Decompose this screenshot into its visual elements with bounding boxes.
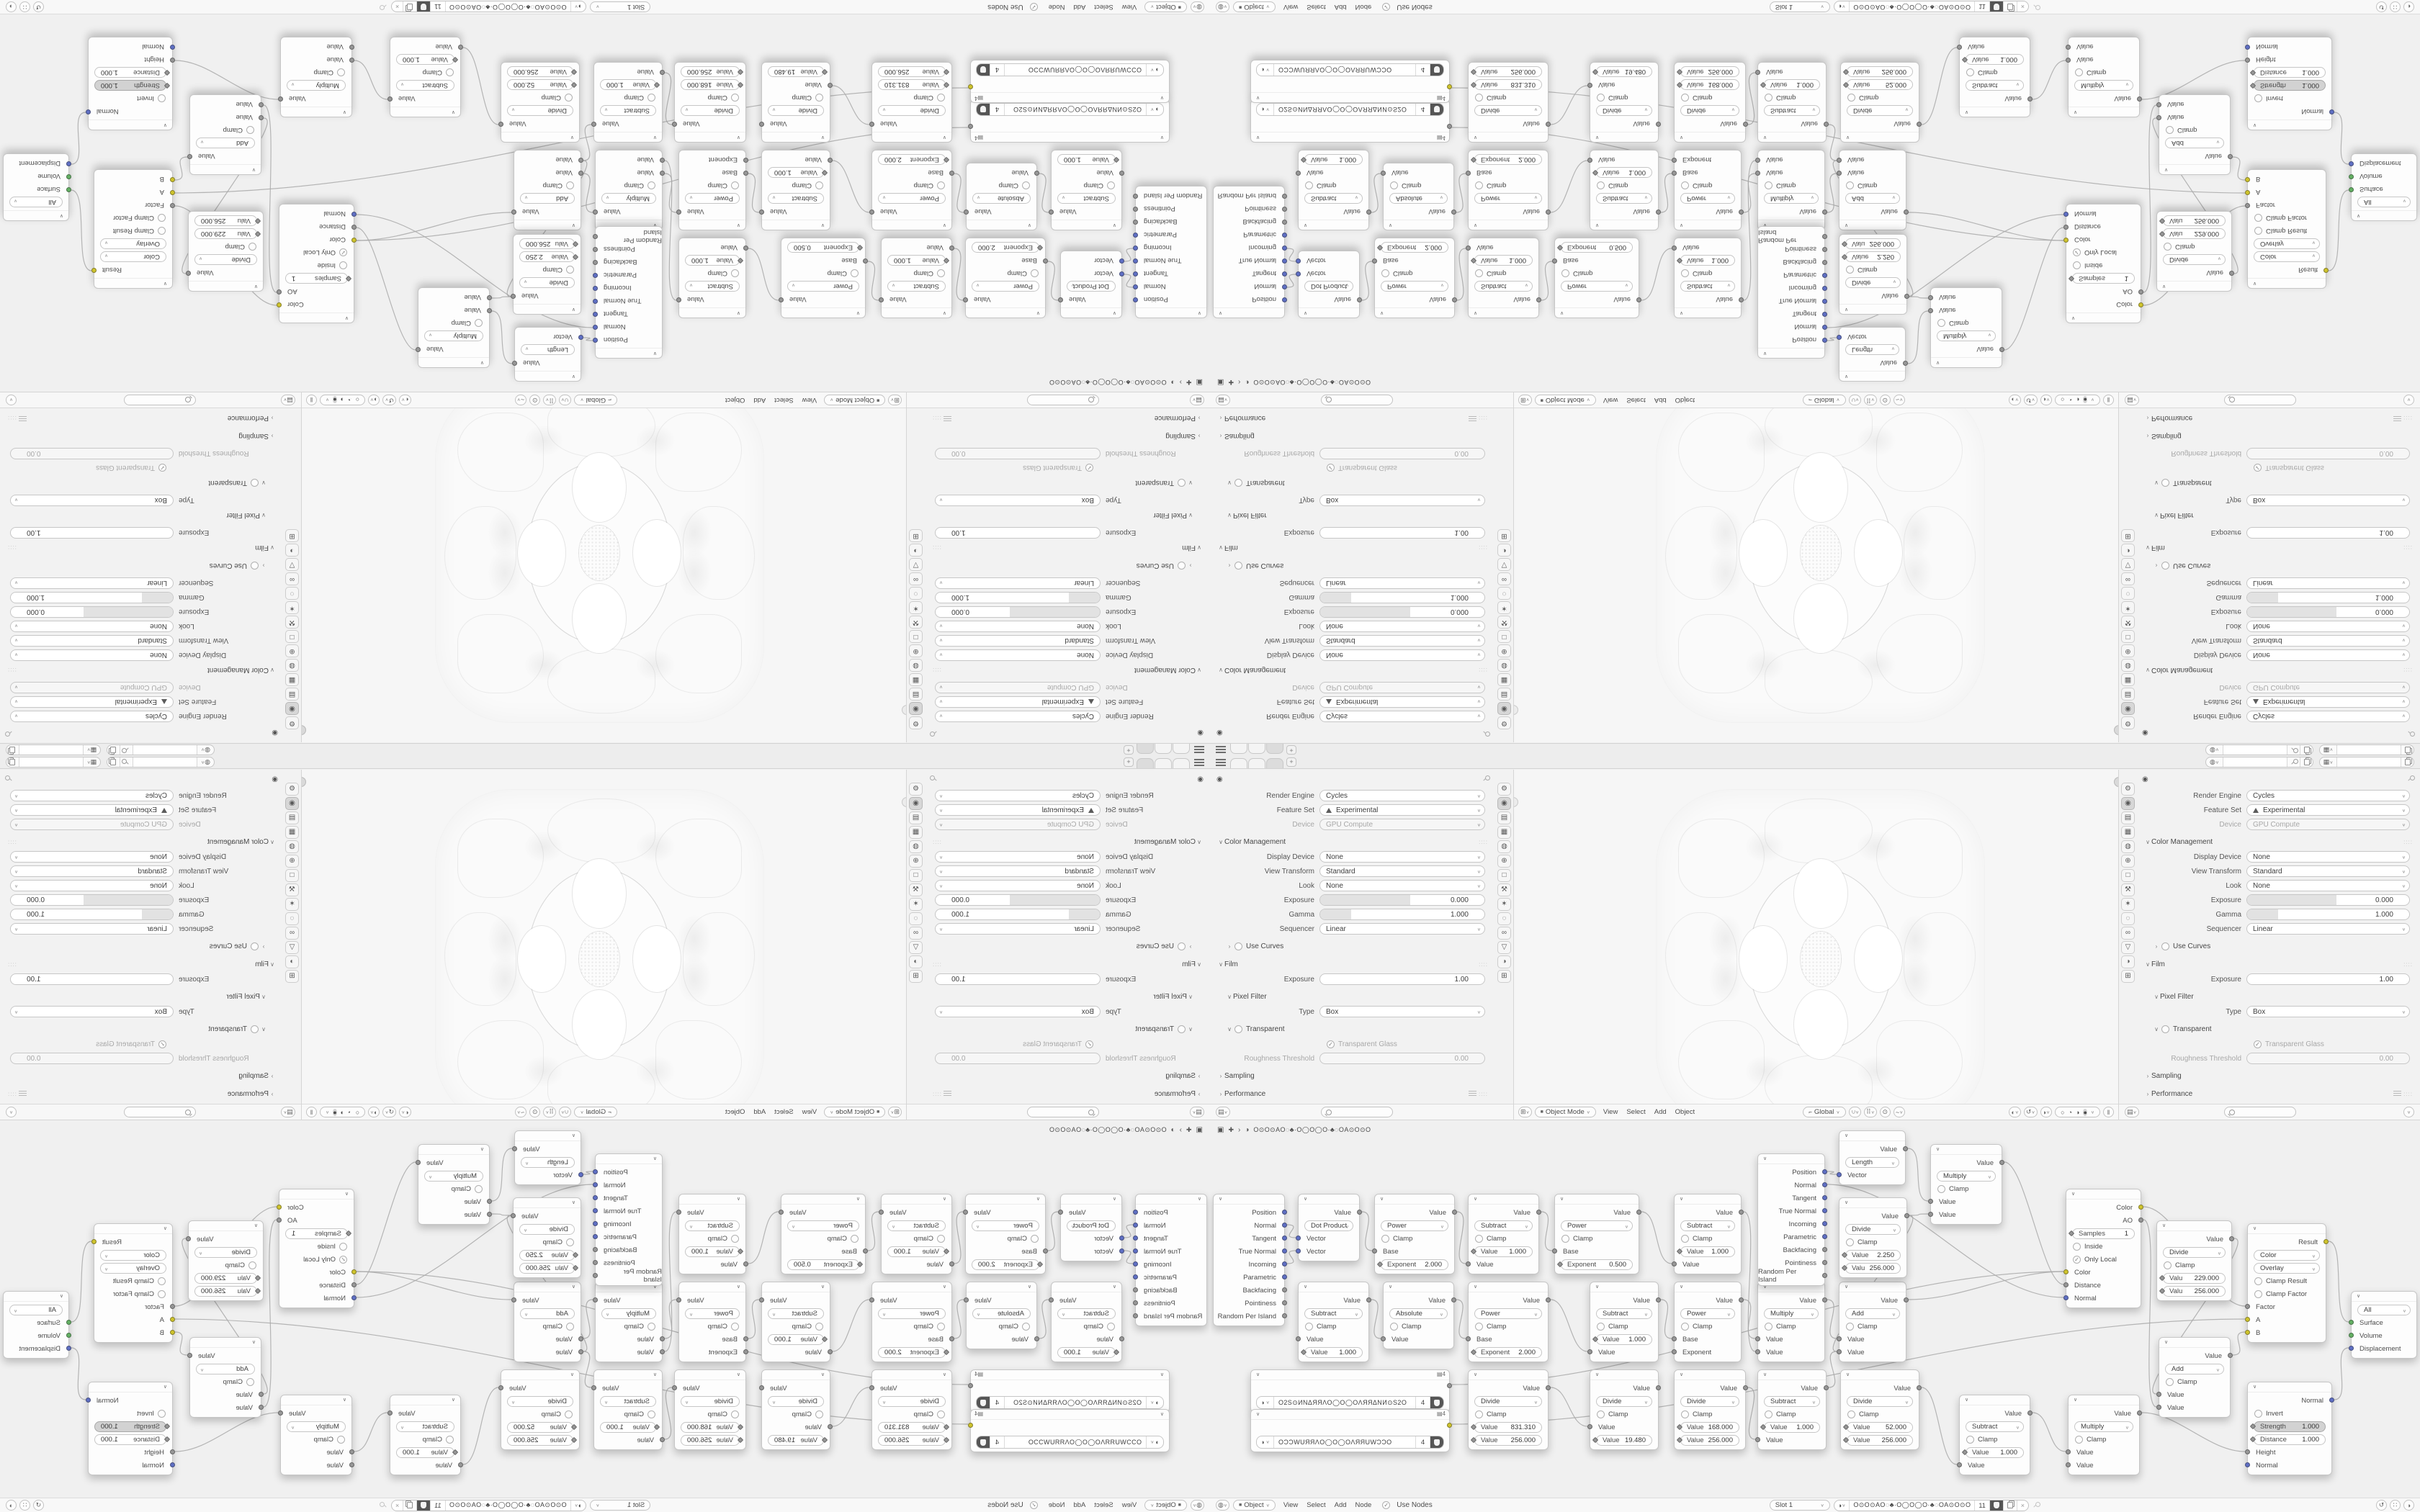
properties-tab-view-layer[interactable]: ▦: [2121, 673, 2135, 686]
output-socket-value[interactable]: [1917, 122, 1922, 127]
properties-pin-icon[interactable]: [931, 775, 938, 782]
output-socket-value[interactable]: [1739, 1297, 1744, 1302]
properties-tab-tool[interactable]: ⚙: [909, 783, 923, 796]
input-socket-vector[interactable]: [1119, 1236, 1124, 1241]
input-socket-value[interactable]: [487, 308, 492, 313]
value-field[interactable]: Value19.480: [768, 1435, 824, 1446]
image-datablock-node[interactable]: ∨▤4◑∨O2S⊙ИΝΔЯЯΛO◯O◯OΛЯЯΔΝИ⊙S2O4: [1250, 99, 1450, 143]
checkbox-icon[interactable]: [339, 262, 347, 270]
checkbox-icon[interactable]: [1475, 270, 1483, 278]
output-socket-value[interactable]: [759, 1385, 764, 1390]
output-socket-value[interactable]: [511, 210, 516, 215]
output-socket-value[interactable]: [1546, 1385, 1551, 1390]
collapse-caret-icon[interactable]: ∨: [1474, 222, 1477, 228]
collapse-button[interactable]: ∨: [2403, 1107, 2414, 1117]
scene-pin-icon[interactable]: [120, 745, 133, 755]
section-performance[interactable]: ›Performance::::: [2137, 1086, 2420, 1102]
prop-dropdown-render-engine[interactable]: Cycles∨: [2246, 711, 2410, 722]
prop-dropdown-view-transform[interactable]: Standard∨: [2246, 865, 2410, 877]
users-count[interactable]: 4: [1415, 64, 1430, 76]
input-socket-value[interactable]: [1837, 171, 1842, 176]
math-node[interactable]: ∨ValueSubtract∨ClampValue1.000Value: [1674, 238, 1742, 318]
output-socket-value[interactable]: [964, 210, 969, 215]
math-node[interactable]: ∨ValueSubtract∨ClampValue1.000Value: [1959, 1395, 2030, 1475]
view-layer-copy-icon[interactable]: [2401, 757, 2414, 767]
math-node[interactable]: ∨ValueMultiply∨ClampValueValue: [2068, 1395, 2140, 1475]
view-layer-copy-icon[interactable]: [6, 757, 19, 767]
output-socket-value[interactable]: [672, 122, 677, 127]
input-socket-base[interactable]: [1043, 258, 1048, 264]
node-header[interactable]: ∨▤4: [1251, 92, 1449, 102]
viewport-menu-add[interactable]: Add: [753, 396, 766, 404]
prop-dropdown-view-transform[interactable]: Standard∨: [2246, 635, 2410, 647]
operation-dropdown[interactable]: Subtract∨: [1057, 1308, 1116, 1319]
overlay-dots-toggle[interactable]: ∷: [19, 1, 30, 12]
image-datablock-node[interactable]: ∨▤4◑∨OƆƆWUЯЯΛO◯O◯OΛЯЯUWƆƆO4: [1250, 1409, 1450, 1452]
collapse-caret-icon[interactable]: ∨: [254, 1223, 258, 1228]
output-socket-incoming[interactable]: [593, 1221, 598, 1226]
overlays-toggle[interactable]: ◐∨: [2009, 395, 2021, 405]
node-header[interactable]: ∨: [679, 1282, 745, 1292]
operation-dropdown[interactable]: Divide∨: [507, 1396, 573, 1407]
properties-tab-output[interactable]: ▤: [2121, 811, 2135, 824]
fake-user-shield-icon[interactable]: [1990, 1500, 2004, 1511]
checkbox-icon[interactable]: [1107, 182, 1115, 190]
properties-tab-world[interactable]: ⊕: [909, 855, 923, 868]
properties-search-input[interactable]: [2224, 395, 2296, 405]
checkbox-icon[interactable]: [1681, 94, 1689, 102]
shading-mode-1[interactable]: ◔: [2069, 1109, 2072, 1116]
collapse-caret-icon[interactable]: ∨: [1595, 222, 1599, 228]
properties-tab-object[interactable]: □: [1497, 630, 1511, 643]
output-socket-value[interactable]: [1058, 297, 1063, 302]
value-field[interactable]: Value1.000: [1680, 256, 1735, 266]
section-checkbox[interactable]: [251, 480, 259, 487]
input-socket-b[interactable]: [2245, 177, 2250, 182]
node-menu-view[interactable]: View: [1122, 1501, 1137, 1509]
collapse-caret-icon[interactable]: ∨: [1595, 1372, 1599, 1377]
node-header[interactable]: ∨: [675, 1370, 745, 1380]
operation-dropdown[interactable]: Divide∨: [2163, 255, 2226, 266]
node-header[interactable]: ∨▤4: [971, 92, 1169, 102]
checkbox-icon[interactable]: [1681, 270, 1689, 278]
operation-dropdown[interactable]: Divide∨: [519, 278, 575, 289]
operation-dropdown[interactable]: Power∨: [878, 194, 946, 204]
collapse-caret-icon[interactable]: ∨: [480, 360, 484, 366]
node-header[interactable]: ∨▤4: [971, 1370, 1169, 1380]
fake-user-shield-icon[interactable]: [1430, 104, 1443, 115]
properties-tab-world[interactable]: ⊕: [2121, 855, 2135, 868]
operation-dropdown[interactable]: Add∨: [2165, 138, 2224, 149]
material-name-field[interactable]: O⊙O⊙AO◌♣·O◯O◯O·♣◌OA⊙O⊙O: [1850, 1500, 1975, 1511]
node-header[interactable]: ∨: [2248, 1382, 2331, 1392]
prop-field-exposure[interactable]: 1.00: [10, 973, 174, 985]
prop-check-transparent-glass[interactable]: ✓Transparent Glass: [1210, 461, 1495, 475]
output-socket-normal[interactable]: [1822, 1182, 1827, 1187]
operation-dropdown[interactable]: Divide∨: [1474, 1396, 1542, 1407]
input-socket-normal[interactable]: [2063, 1295, 2069, 1300]
collapse-caret-icon[interactable]: ∨: [1380, 310, 1384, 316]
operation-dropdown[interactable]: Power∨: [972, 1220, 1039, 1231]
shading-mode-0[interactable]: ○: [2061, 1109, 2064, 1116]
viewport-menu-object[interactable]: Object: [1675, 396, 1695, 404]
section-checkbox[interactable]: [1178, 1025, 1186, 1033]
node-header[interactable]: ∨: [515, 371, 581, 381]
prop-field-roughness-threshold[interactable]: 0.00: [10, 448, 174, 459]
properties-tab-tool[interactable]: ⚙: [285, 783, 299, 796]
scene-selector[interactable]: ◍∨: [107, 744, 215, 755]
fake-user-shield-icon[interactable]: [416, 2, 430, 12]
section-checkbox[interactable]: [2161, 1025, 2169, 1033]
properties-tab-tool[interactable]: ⚙: [285, 716, 299, 729]
properties-tab-scene[interactable]: ◍: [1497, 659, 1511, 672]
math-node[interactable]: ∨ValuePower∨ClampBaseExponent2.000: [871, 1282, 952, 1362]
operation-dropdown[interactable]: Subtract∨: [768, 1308, 824, 1319]
section-sampling[interactable]: ›Sampling: [925, 428, 1210, 444]
input-socket-value[interactable]: [660, 1349, 665, 1354]
scene-pin-icon[interactable]: [2287, 745, 2300, 755]
scene-name-field[interactable]: [133, 745, 197, 755]
collapse-caret-icon[interactable]: ∨: [163, 281, 167, 287]
collapse-caret-icon[interactable]: ∨: [2071, 315, 2075, 321]
section-color-management[interactable]: ∨Color Management::::: [0, 834, 283, 850]
section-film[interactable]: ∨Film::::: [0, 540, 283, 556]
collapse-caret-icon[interactable]: ∨: [1474, 1196, 1477, 1202]
properties-tab-object-data[interactable]: ▽: [285, 941, 299, 954]
properties-tab-constraints[interactable]: ∞: [285, 927, 299, 940]
prop-dropdown-view-transform[interactable]: Standard∨: [1319, 635, 1485, 647]
viewport-menu-object[interactable]: Object: [725, 396, 745, 404]
output-socket-result[interactable]: [91, 268, 97, 273]
value-field[interactable]: Value1.000: [600, 80, 656, 91]
checkbox-icon[interactable]: [815, 94, 823, 102]
viewport-3d[interactable]: ⊞∨ ■Object Mode∨ ViewSelectAddObject ⌐Gl…: [1514, 770, 2118, 1120]
input-socket-value[interactable]: [1119, 171, 1124, 176]
properties-tab-object-data[interactable]: ▽: [2121, 941, 2135, 954]
output-socket-random-per-island[interactable]: [1282, 1313, 1287, 1318]
value-field[interactable]: Strength1.000: [94, 81, 166, 91]
collapse-caret-icon[interactable]: ∨: [60, 1293, 63, 1299]
prop-slider-exposure[interactable]: 0.000: [10, 606, 174, 618]
math-node[interactable]: ∨ValueSubtract∨ClampValue1.000Value: [881, 238, 952, 318]
math-node[interactable]: ∨ValueDivide∨ClampValue52.000Value256.00…: [1840, 1369, 1919, 1450]
input-socket-vector[interactable]: [1837, 1172, 1842, 1177]
output-socket-position[interactable]: [1822, 338, 1827, 343]
section-checkbox[interactable]: [1234, 1025, 1242, 1033]
material-name-field[interactable]: O⊙O⊙AO◌♣·O◯O◯O·♣◌OA⊙O⊙O: [445, 2, 570, 12]
collapse-caret-icon[interactable]: ∨: [1680, 310, 1683, 316]
add-workspace-button[interactable]: +: [1286, 745, 1296, 755]
operation-dropdown[interactable]: Overlay∨: [2254, 1263, 2320, 1274]
properties-search-input[interactable]: [124, 1107, 196, 1117]
output-socket-position[interactable]: [593, 338, 598, 343]
node-header[interactable]: ∨: [1675, 1194, 1741, 1205]
scene-selector[interactable]: ◍∨: [2205, 744, 2313, 755]
output-socket-incoming[interactable]: [1822, 286, 1827, 291]
operation-dropdown[interactable]: Multiply∨: [2074, 1421, 2133, 1432]
prop-check-transparent-glass[interactable]: ✓Transparent Glass: [925, 1037, 1210, 1051]
geometry-node[interactable]: ∨PositionNormalTangentTrue NormalIncomin…: [1213, 1194, 1285, 1326]
properties-tab-particles[interactable]: ✶: [1497, 898, 1511, 911]
operation-dropdown[interactable]: Subtract∨: [1596, 1308, 1652, 1319]
checkbox-icon[interactable]: [2254, 1290, 2262, 1298]
node-header[interactable]: ∨: [2159, 164, 2230, 174]
collapse-caret-icon[interactable]: ∨: [1160, 95, 1164, 101]
prop-field-roughness-threshold[interactable]: 0.00: [2246, 448, 2410, 459]
output-socket-value[interactable]: [1536, 297, 1541, 302]
math-node[interactable]: ∨ValueSubtract∨ClampValue1.000Value: [1590, 1282, 1659, 1362]
math-node[interactable]: ∨ValueDivide∨ClampValue52.000Value256.00…: [1840, 62, 1919, 143]
output-socket-value[interactable]: [879, 1210, 884, 1215]
prop-slider-gamma[interactable]: 1.000: [935, 592, 1101, 603]
properties-tab-particles[interactable]: ✶: [909, 601, 923, 614]
checkbox-icon[interactable]: [158, 1290, 166, 1298]
input-socket-exponent[interactable]: [1672, 1349, 1677, 1354]
node-header[interactable]: ∨: [89, 1382, 172, 1392]
scene-name-field[interactable]: [2223, 757, 2287, 767]
section-checkbox[interactable]: [1234, 942, 1242, 950]
shading-mode-0[interactable]: ○: [355, 1109, 359, 1116]
output-socket-pointiness[interactable]: [1133, 207, 1138, 212]
properties-tab-modifiers[interactable]: ⚒: [285, 883, 299, 896]
collapse-caret-icon[interactable]: ∨: [343, 1397, 346, 1403]
math-node[interactable]: ∨ValueAdd∨ClampValueValue: [1839, 1282, 1906, 1362]
output-socket-tangent[interactable]: [1822, 1195, 1827, 1200]
section-pixel-filter[interactable]: ∨Pixel Filter: [0, 989, 283, 1004]
properties-tab-output[interactable]: ▤: [1497, 688, 1511, 701]
prop-field-exposure[interactable]: 1.00: [1319, 527, 1485, 539]
output-socket-value[interactable]: [593, 210, 598, 215]
input-socket-b[interactable]: [170, 1330, 175, 1335]
output-socket-random-per-island[interactable]: [1282, 194, 1287, 199]
node-header[interactable]: ∨: [189, 1221, 263, 1231]
output-socket-value[interactable]: [498, 122, 503, 127]
shading-mode-3[interactable]: ●: [333, 397, 336, 404]
gizmos-toggle[interactable]: ↺∨: [2024, 395, 2038, 405]
math-node[interactable]: ∨ValueMultiply∨ClampValueValue: [595, 150, 663, 230]
properties-tab-physics[interactable]: ◌: [909, 912, 923, 925]
checkbox-icon[interactable]: [1681, 182, 1689, 190]
value-field[interactable]: Value2.250: [1845, 1250, 1901, 1261]
output-socket-value[interactable]: [1366, 1297, 1371, 1302]
collapse-caret-icon[interactable]: ∨: [2253, 122, 2257, 128]
mode-dropdown[interactable]: ■Object Mode∨: [824, 395, 885, 405]
output-socket-value[interactable]: [2137, 1410, 2142, 1416]
viewport-3d[interactable]: ⊞∨ ■Object Mode∨ ViewSelectAddObject ⌐Gl…: [1514, 392, 2118, 742]
checkbox-icon[interactable]: [1390, 182, 1398, 190]
operation-dropdown[interactable]: Divide∨: [1596, 106, 1652, 117]
operation-dropdown[interactable]: Subtract∨: [1764, 106, 1820, 117]
node-header[interactable]: ∨: [872, 1370, 951, 1380]
editor-type-button[interactable]: ▤∨: [1216, 395, 1230, 405]
output-socket-value[interactable]: [1049, 1297, 1054, 1302]
output-socket-value[interactable]: [387, 1410, 393, 1416]
checkbox-icon[interactable]: [731, 182, 739, 190]
checkbox-icon[interactable]: [1681, 1235, 1689, 1243]
material-users-count[interactable]: 11: [430, 2, 444, 12]
material-pin-icon[interactable]: [381, 1502, 387, 1508]
image-datablock-node[interactable]: ∨▤4◑∨OƆƆWUЯЯΛO◯O◯OΛЯЯUWƆƆO4: [1250, 60, 1450, 103]
input-socket-color[interactable]: [351, 1269, 357, 1274]
prop-field-roughness-threshold[interactable]: 0.00: [935, 448, 1101, 459]
datablock-name[interactable]: O2S⊙ИΝΔЯЯΛO◯O◯OΛЯЯΔΝИ⊙S2O: [1274, 106, 1415, 114]
node-header[interactable]: ∨: [2159, 1338, 2230, 1348]
output-socket-ao[interactable]: [2138, 289, 2143, 294]
properties-tab-modifiers[interactable]: ⚒: [2121, 883, 2135, 896]
properties-tab-particles[interactable]: ✶: [909, 898, 923, 911]
collapse-caret-icon[interactable]: ∨: [252, 167, 256, 173]
section-checkbox[interactable]: [251, 1025, 259, 1033]
properties-tab-constraints[interactable]: ∞: [909, 927, 923, 940]
node-header[interactable]: ∨: [1375, 307, 1454, 318]
node-header[interactable]: ∨: [1675, 1370, 1745, 1380]
checkbox-icon[interactable]: ✓: [339, 1256, 347, 1264]
viewport-3d[interactable]: ⊞∨ ■Object Mode∨ ViewSelectAddObject ⌐Gl…: [302, 770, 906, 1120]
collapse-caret-icon[interactable]: ∨: [2253, 1384, 2257, 1390]
prop-dropdown-render-engine[interactable]: Cycles∨: [10, 790, 174, 801]
properties-tab-object-data[interactable]: ▽: [1497, 941, 1511, 954]
datablock-field[interactable]: ◑∨O2S⊙ИΝΔЯЯΛO◯O◯OΛЯЯΔΝИ⊙S2O4: [976, 103, 1164, 116]
input-socket-value[interactable]: [578, 1349, 583, 1354]
math-node[interactable]: ∨ValueMultiply∨ClampValueValue: [1930, 1144, 2002, 1225]
math-node[interactable]: ∨ValueMultiply∨ClampValueValue: [1930, 287, 2002, 368]
node-header[interactable]: ∨: [1590, 1282, 1658, 1292]
workspace-tab[interactable]: [1248, 744, 1265, 754]
value-field[interactable]: Value52.000: [507, 1422, 573, 1433]
ambient-occlusion-node[interactable]: ∨ColorAOSamples1Inside✓Only LocalColorDi…: [2066, 204, 2141, 323]
fake-user-shield-icon[interactable]: [1430, 1397, 1443, 1408]
prop-dropdown-render-engine[interactable]: Cycles∨: [935, 711, 1101, 722]
properties-pin-icon[interactable]: [2407, 775, 2414, 782]
prop-dropdown-device[interactable]: GPU Compute∨: [10, 682, 174, 693]
section-use-curves[interactable]: ›Use Curves: [925, 938, 1210, 954]
operation-dropdown[interactable]: Divide∨: [2163, 1247, 2226, 1258]
value-field[interactable]: Exponent2.000: [1381, 243, 1448, 253]
node-header[interactable]: ∨: [1375, 1194, 1454, 1205]
input-socket-a[interactable]: [170, 1317, 175, 1322]
math-node[interactable]: ∨ValueAbsolute∨ClampValue: [966, 1282, 1037, 1349]
collapse-caret-icon[interactable]: ∨: [2074, 1397, 2077, 1403]
prop-slider-gamma[interactable]: 1.000: [10, 592, 174, 603]
operation-dropdown[interactable]: Dot Product∨: [1304, 1220, 1353, 1231]
checkbox-icon[interactable]: [815, 1410, 823, 1418]
input-socket-displacement[interactable]: [66, 1346, 71, 1351]
prop-dropdown-feature-set[interactable]: Experimental∨: [935, 804, 1101, 816]
output-socket-value[interactable]: [1904, 294, 1909, 299]
math-node[interactable]: ∨ValuePower∨ClampBaseExponent: [678, 150, 746, 230]
math-node[interactable]: ∨ValueAbsolute∨ClampValue: [966, 163, 1037, 230]
shading-mode-2[interactable]: ◑: [341, 1109, 344, 1116]
node-header[interactable]: ∨: [762, 132, 830, 142]
node-header[interactable]: ∨: [390, 107, 460, 117]
checkbox-icon[interactable]: [248, 243, 256, 251]
prop-dropdown-view-transform[interactable]: Standard∨: [10, 635, 174, 647]
operation-dropdown[interactable]: Divide∨: [194, 1247, 257, 1258]
datablock-name[interactable]: OƆƆWUЯЯΛO◯O◯OΛЯЯUWƆƆO: [1274, 1439, 1415, 1446]
collapse-caret-icon[interactable]: ∨: [821, 135, 825, 140]
node-header[interactable]: ∨: [594, 1370, 662, 1380]
prop-slider-gamma[interactable]: 1.000: [1319, 592, 1485, 603]
properties-pin-icon[interactable]: [6, 775, 13, 782]
math-node[interactable]: ∨ValueDivide∨ClampValueValue19.480: [761, 1369, 830, 1450]
checkbox-icon[interactable]: [2075, 1436, 2083, 1444]
properties-tab-material[interactable]: ◑: [1497, 955, 1511, 968]
math-node[interactable]: ∨ValueDivide∨ClampValueValue19.480: [1590, 62, 1659, 143]
unlink-material-icon[interactable]: ×: [392, 2, 403, 12]
prop-dropdown-sequencer[interactable]: Linear∨: [10, 577, 174, 589]
input-socket-value[interactable]: [487, 1199, 492, 1204]
math-node[interactable]: ∨ValueMultiply∨ClampValueValue: [418, 287, 490, 368]
input-socket-base[interactable]: [743, 171, 748, 176]
pause-render-button[interactable]: ‖: [2103, 1107, 2114, 1117]
output-socket-value[interactable]: [1903, 1146, 1908, 1151]
value-field[interactable]: Exponent2.000: [972, 1259, 1039, 1270]
operation-dropdown[interactable]: Multiply∨: [424, 1171, 483, 1182]
output-socket-normal[interactable]: [1133, 284, 1138, 289]
prop-slider-exposure[interactable]: 0.000: [1319, 606, 1485, 618]
input-socket-value[interactable]: [578, 1336, 583, 1341]
output-socket-pointiness[interactable]: [1822, 247, 1827, 252]
shading-mode-2[interactable]: ◑: [341, 397, 344, 404]
prop-dropdown-feature-set[interactable]: Experimental∨: [10, 696, 174, 708]
value-field[interactable]: Value256.000: [1474, 1435, 1542, 1446]
properties-tab-particles[interactable]: ✶: [1497, 601, 1511, 614]
input-socket-value[interactable]: [828, 1349, 833, 1354]
node-header[interactable]: ∨: [1469, 1370, 1548, 1380]
collapse-caret-icon[interactable]: ∨: [1389, 222, 1392, 228]
shading-preview-dropdown[interactable]: ◑: [2403, 1, 2414, 12]
output-socket-value[interactable]: [1917, 1385, 1922, 1390]
properties-tab-world[interactable]: ⊕: [1497, 855, 1511, 868]
collapse-caret-icon[interactable]: ∨: [1028, 222, 1031, 228]
collapse-caret-icon[interactable]: ∨: [737, 1284, 740, 1290]
slot-dropdown[interactable]: Slot 1∨: [590, 1500, 650, 1511]
operation-dropdown[interactable]: Absolute∨: [1389, 1308, 1448, 1319]
input-socket-value[interactable]: [2156, 102, 2161, 107]
output-socket-color[interactable]: [277, 1205, 282, 1210]
operation-dropdown[interactable]: All∨: [9, 1305, 63, 1315]
operation-dropdown[interactable]: Divide∨: [768, 106, 824, 117]
ambient-occlusion-node[interactable]: ∨ColorAOSamples1Inside✓Only LocalColorDi…: [279, 1189, 354, 1308]
node-header[interactable]: ∨: [1758, 1370, 1826, 1380]
image-icon[interactable]: ◑∨: [1146, 1436, 1163, 1448]
input-socket-base[interactable]: [1552, 258, 1557, 264]
math-node[interactable]: ∨ValuePower∨ClampBaseExponent2.000: [965, 1194, 1046, 1274]
output-socket-value[interactable]: [591, 122, 596, 127]
toolbar-handle[interactable]: [902, 705, 906, 715]
workspace-tab[interactable]: [1137, 758, 1154, 768]
input-socket-value[interactable]: [578, 158, 583, 163]
value-field[interactable]: Value1.000: [887, 1246, 946, 1257]
properties-tab-object[interactable]: □: [909, 869, 923, 882]
value-field[interactable]: Value19.480: [1596, 1435, 1652, 1446]
collapse-caret-icon[interactable]: ∨: [1474, 135, 1477, 140]
math-node[interactable]: ∨ValuePower∨ClampBaseExponent2.000: [871, 150, 952, 230]
operation-dropdown[interactable]: Add∨: [520, 194, 575, 204]
prop-slider-exposure[interactable]: 0.000: [2246, 894, 2410, 906]
workspace-tab[interactable]: [1230, 744, 1247, 754]
math-node[interactable]: ∨ValueSubtract∨ClampValue1.000Value: [1468, 1194, 1539, 1274]
prop-slider-exposure[interactable]: 0.000: [1319, 894, 1485, 906]
collapse-caret-icon[interactable]: ∨: [1595, 135, 1599, 140]
viewport-menu-add[interactable]: Add: [753, 1108, 766, 1116]
view-layer-selector[interactable]: ▦∨: [2319, 744, 2414, 755]
viewport-3d[interactable]: ⊞∨ ■Object Mode∨ ViewSelectAddObject ⌐Gl…: [302, 392, 906, 742]
node-menu-add[interactable]: Add: [1073, 1501, 1085, 1509]
value-field[interactable]: Value256.000: [878, 67, 946, 78]
properties-tab-material[interactable]: ◑: [285, 544, 299, 557]
checkbox-icon[interactable]: [1475, 1323, 1483, 1331]
